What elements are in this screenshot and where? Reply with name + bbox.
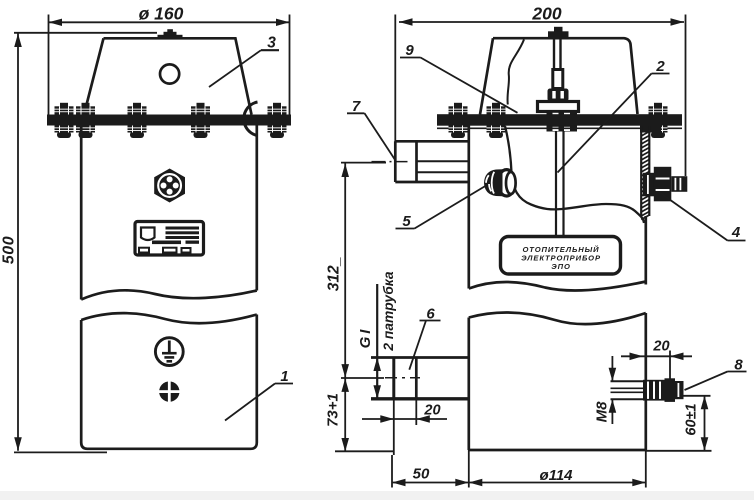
- svg-text:2: 2: [655, 58, 665, 75]
- svg-text:20: 20: [423, 403, 440, 419]
- svg-text:ЭПО: ЭПО: [551, 262, 571, 271]
- svg-text:2 патрубка: 2 патрубка: [381, 271, 396, 351]
- svg-text:1: 1: [280, 368, 288, 385]
- svg-text:5: 5: [402, 213, 411, 230]
- svg-text:500: 500: [1, 236, 18, 264]
- svg-text:312_: 312_: [326, 257, 343, 291]
- svg-text:20: 20: [652, 339, 669, 355]
- svg-text:9: 9: [405, 42, 414, 59]
- svg-text:ø114: ø114: [539, 467, 573, 484]
- svg-text:200: 200: [531, 4, 561, 24]
- svg-text:4: 4: [731, 224, 741, 241]
- svg-text:50: 50: [413, 466, 430, 483]
- svg-text:М8: М8: [593, 401, 610, 422]
- svg-text:3: 3: [267, 35, 276, 52]
- svg-text:G I: G I: [357, 329, 374, 349]
- svg-text:73+1: 73+1: [324, 393, 341, 427]
- svg-text:ø 160: ø 160: [139, 4, 184, 24]
- svg-text:60±1: 60±1: [683, 403, 699, 435]
